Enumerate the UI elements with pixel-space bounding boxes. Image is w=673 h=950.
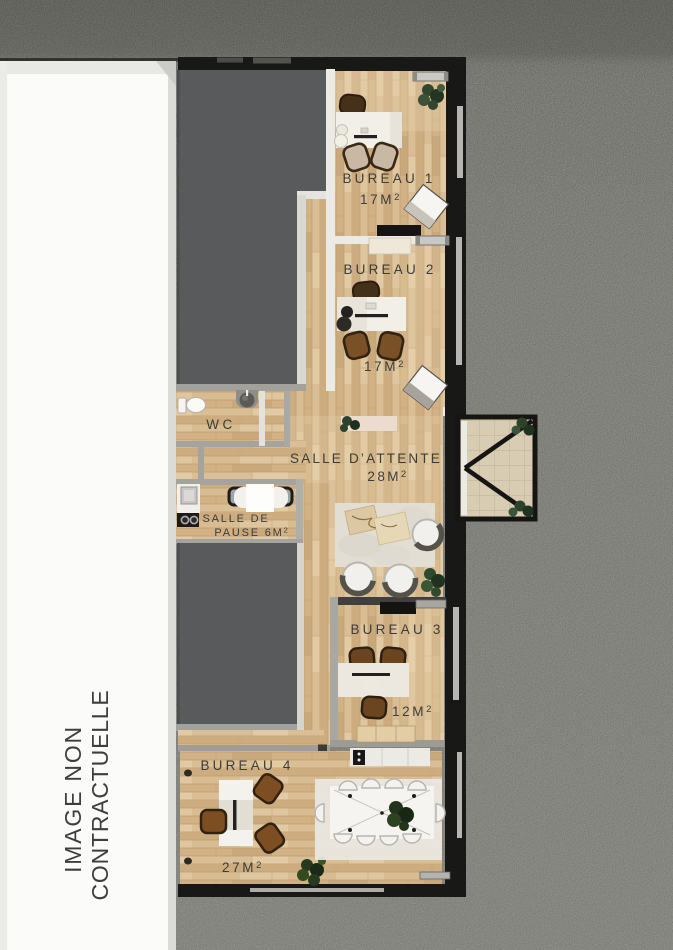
svg-text:IMAGE NON: IMAGE NON — [60, 725, 86, 873]
svg-text:SALLE D’ATTENTE: SALLE D’ATTENTE — [290, 451, 442, 466]
svg-text:BUREAU 3: BUREAU 3 — [350, 622, 443, 637]
svg-text:SALLE DE: SALLE DE — [203, 513, 270, 525]
svg-text:CONTRACTUELLE: CONTRACTUELLE — [87, 689, 113, 900]
svg-text:PAUSE 6M2: PAUSE 6M2 — [214, 526, 289, 540]
svg-text:BUREAU 1: BUREAU 1 — [342, 171, 435, 186]
svg-text:WC: WC — [206, 417, 236, 432]
svg-text:BUREAU 2: BUREAU 2 — [343, 262, 436, 277]
svg-text:BUREAU 4: BUREAU 4 — [200, 758, 293, 773]
